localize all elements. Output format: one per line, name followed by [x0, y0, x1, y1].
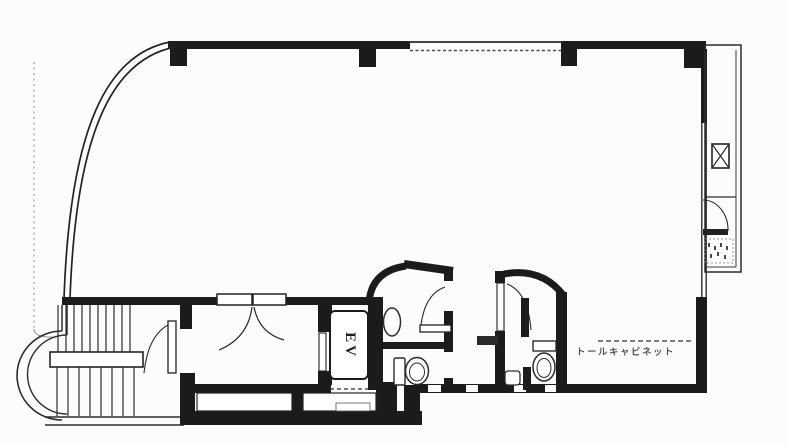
balcony: [703, 45, 741, 272]
counter: [477, 336, 498, 345]
stair-treads-upper: [58, 305, 130, 352]
column: [359, 41, 376, 67]
column: [170, 41, 187, 66]
wc-pod-right: [477, 271, 567, 390]
sill-hatch: [708, 243, 728, 259]
room-double-door: [193, 294, 332, 393]
door-swing: [219, 307, 252, 350]
hand-sink: [505, 371, 520, 385]
curved-facade: [64, 42, 175, 299]
door-swing: [421, 287, 445, 325]
pipe-space-icon: [712, 144, 729, 168]
wc-pod-left: [368, 264, 453, 390]
staircase: [17, 305, 195, 425]
wash-basin: [384, 308, 401, 336]
floor-plan-drawing: [0, 0, 787, 445]
door-leaf: [497, 283, 504, 331]
balcony-sill: [705, 239, 733, 263]
door-swing: [254, 307, 284, 340]
toilet-tank: [533, 341, 556, 351]
exterior-walls: [168, 41, 707, 393]
balcony-door-leaf: [703, 229, 728, 235]
elevator-label-text: EV: [341, 332, 358, 359]
site-boundary-line: [34, 62, 54, 337]
stair-door-leaf: [168, 321, 176, 373]
door-leaf: [217, 294, 252, 305]
round-stairwell-wall: [17, 331, 62, 420]
stair-landing: [50, 352, 143, 367]
column: [561, 41, 577, 66]
floor-plan-canvas: EV トールキャビネット: [0, 0, 787, 445]
toilet-bowl: [406, 358, 429, 385]
door-leaf: [420, 325, 451, 332]
door-leaf: [253, 294, 286, 305]
stair-door-swing: [144, 325, 168, 373]
cabinet-annotation: トールキャビネット: [576, 344, 696, 359]
elevator-door: [319, 333, 326, 371]
elevator-label: EV: [330, 311, 368, 379]
window-band-top: [408, 42, 563, 51]
toilet-bowl: [533, 353, 555, 381]
toilet-tank: [394, 358, 405, 385]
stair-treads-lower: [57, 367, 134, 416]
entry-recess: [197, 393, 292, 411]
